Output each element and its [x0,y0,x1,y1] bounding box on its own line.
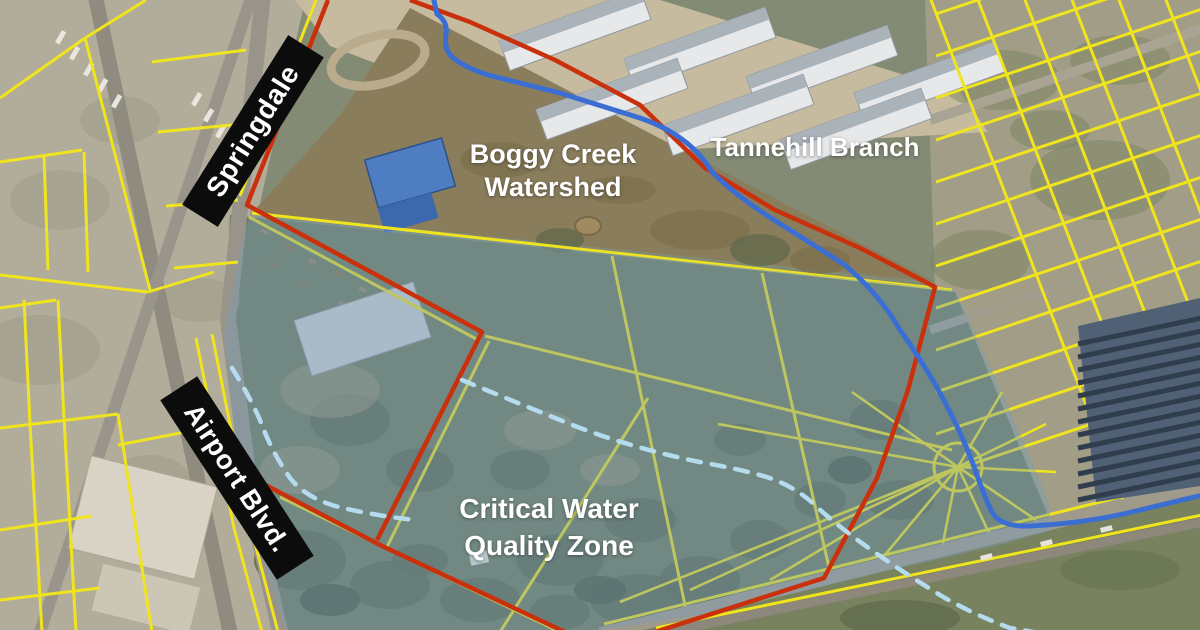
label-critical-water-quality-zone: Critical Water Quality Zone [408,490,690,564]
label-line: Watershed [413,171,693,204]
label-boggy-creek-watershed: Boggy Creek Watershed [413,138,693,204]
label-line: Critical Water [408,490,690,527]
label-line: Quality Zone [408,527,690,564]
map-canvas: Springdale Airport Blvd. Boggy Creek Wat… [0,0,1200,630]
label-line: Boggy Creek [413,138,693,171]
label-tannehill-branch: Tannehill Branch [662,132,968,162]
